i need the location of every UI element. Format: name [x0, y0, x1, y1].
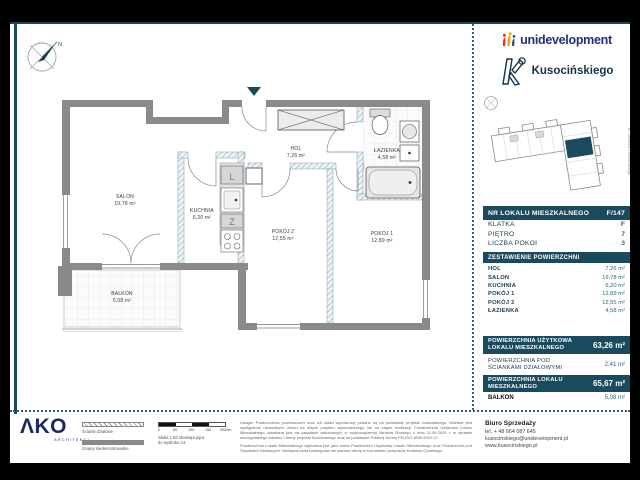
- unit-number-header: NR LOKALU MIESZKALNEGO F/147: [483, 206, 630, 220]
- project-name: Kusocińskiego: [532, 65, 614, 77]
- sales-office-info: Biuro Sprzedaży tel. + 48 664 087 645 ku…: [485, 420, 625, 451]
- room-label-salon: SALON: [116, 194, 134, 200]
- table-row: PIĘTRO 7: [483, 230, 630, 240]
- building-outline: [490, 114, 605, 202]
- structural-wall-swatch: [82, 440, 144, 445]
- scale-caption: Skala 1:50 obowiązująca do wydruku A3: [158, 435, 238, 445]
- sales-email: kusocinskiego@unidevelopment.pl: [485, 436, 625, 443]
- scale-bar: 0 50 100 150 200cm Skala 1:50 obowiązują…: [158, 422, 238, 445]
- dishwasher-label: Z: [229, 217, 235, 227]
- entrance-arrow-icon: [247, 87, 261, 96]
- table-row: POKÓJ 1 12,89 m²: [483, 290, 630, 298]
- floor-plan-drawing: N: [10, 22, 480, 412]
- room-label-pokoj1: POKÓJ 1: [371, 230, 394, 237]
- unit-number-value: F/147: [607, 210, 625, 217]
- room-area-balkon: 5,08 m²: [113, 298, 131, 304]
- table-row: HOL 7,26 m²: [483, 265, 630, 273]
- sales-website: www.kusocinskiego.pl: [485, 443, 625, 450]
- room-area-pokoj1: 12,89 m²: [371, 238, 392, 244]
- room-label-pokoj2: POKÓJ 2: [272, 228, 295, 235]
- disclaimer-paragraph: Powierzchnia Lokalu Mieszkalnego wylicza…: [240, 443, 472, 453]
- compass-icon: N: [28, 42, 62, 71]
- floor-plan-sheet: N: [10, 22, 630, 463]
- developer-logo: unidevelopment: [483, 28, 630, 52]
- table-row: SALON 19,78 m²: [483, 273, 630, 281]
- wall-legend: Ścianki działowe Ściany niedemontowalne: [82, 422, 152, 457]
- fridge-label: L: [229, 172, 234, 182]
- wardrobe: [278, 110, 344, 130]
- room-area-lazienka: 4,58 m²: [378, 155, 396, 161]
- kusocinskiego-k-icon: [500, 55, 526, 87]
- compass-north-label: N: [58, 42, 62, 48]
- partition-wall-label: Ścianki działowe: [82, 429, 152, 434]
- project-logo: Kusocińskiego: [483, 54, 630, 88]
- keyplan-compass-icon: [485, 96, 500, 110]
- disclaimer-paragraph: Uwaga: Powierzchnia pomieszczeń oraz ich…: [240, 420, 472, 440]
- table-row: POKÓJ 2 12,55 m²: [483, 299, 630, 307]
- partition-area-row: POWIERZCHNIA POD ŚCIANKAMI DZIAŁOWYMI 2,…: [483, 357, 630, 373]
- legal-disclaimer: Uwaga: Powierzchnia pomieszczeń oraz ich…: [240, 420, 472, 456]
- balcony-area-row: BALKON 5,08 m²: [483, 394, 630, 403]
- partition-wall-swatch: [82, 422, 144, 427]
- room-area-pokoj2: 12,55 m²: [272, 236, 293, 242]
- unit-number-label: NR LOKALU MIESZKALNEGO: [488, 210, 589, 217]
- room-area-kuchnia: 6,20 m²: [193, 215, 211, 221]
- sales-office-title: Biuro Sprzedaży: [485, 420, 625, 427]
- usable-area-summary: POWIERZCHNIA UŻYTKOWA LOKALU MIESZKALNEG…: [483, 336, 630, 354]
- building-key-plan: ul. Janusza Kusocińskiego: [478, 88, 634, 202]
- room-label-kuchnia: KUCHNIA: [190, 208, 214, 214]
- room-label-lazienka: ŁAZIENKA: [374, 148, 400, 154]
- street-label: ul. Janusza Kusocińskiego: [627, 128, 632, 176]
- room-area-hol: 7,26 m²: [287, 153, 305, 159]
- room-label-balkon: BALKON: [111, 291, 133, 297]
- architect-subtitle: ARCHITEKCI: [20, 438, 90, 442]
- table-row: KUCHNIA 6,20 m²: [483, 282, 630, 290]
- scale-ticks: 0 50 100 150 200cm: [158, 427, 234, 433]
- areas-table-header: ZESTAWIENIE POWIERZCHNI: [483, 252, 630, 263]
- table-row: ŁAZIENKA 4,58 m²: [483, 307, 630, 315]
- structural-wall-label: Ściany niedemontowalne: [82, 446, 152, 451]
- room-label-hol: HOL: [291, 146, 302, 152]
- architect-logo: ΛKO ARCHITEKCI: [20, 416, 90, 442]
- room-area-salon: 19,78 m²: [114, 201, 135, 207]
- unidevelopment-icon: [501, 32, 516, 48]
- table-row: KLATKA F: [483, 220, 630, 230]
- sales-phone: tel. + 48 664 087 645: [485, 429, 625, 436]
- developer-name: unidevelopment: [520, 33, 612, 47]
- table-row: LICZBA POKOI 3: [483, 239, 630, 249]
- kitchen-fixtures: L Z: [220, 163, 262, 252]
- total-area-summary: POWIERZCHNIA LOKALU MIESZKALNEGO 65,67 m…: [483, 375, 630, 392]
- architect-name: ΛKO: [20, 416, 90, 438]
